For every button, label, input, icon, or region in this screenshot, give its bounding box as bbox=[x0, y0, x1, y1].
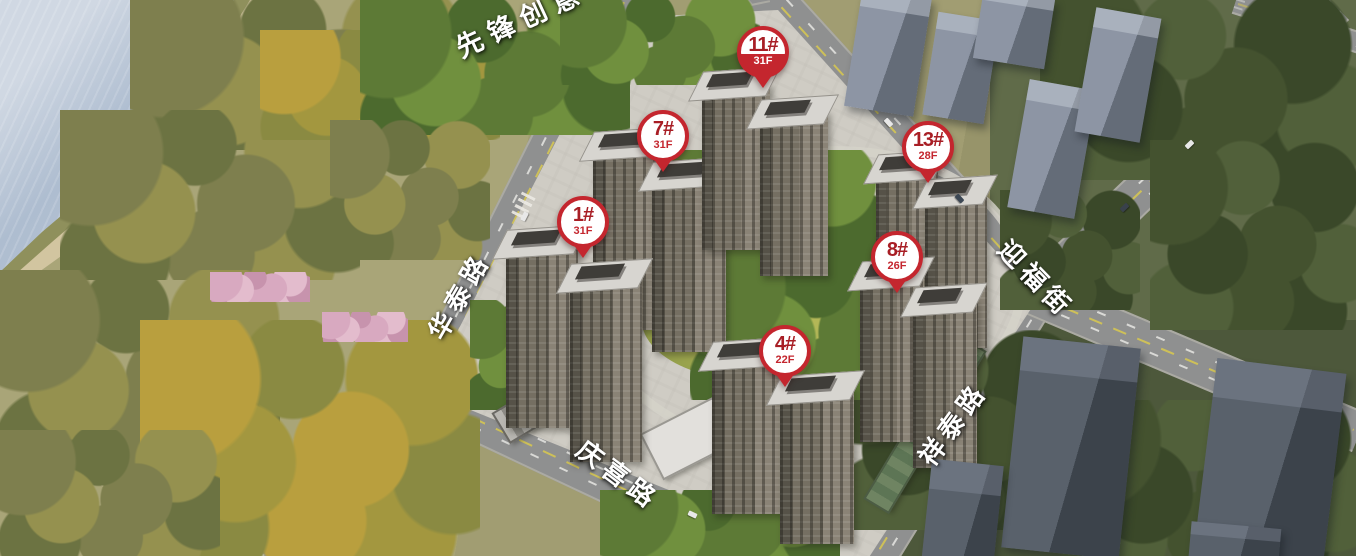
tower-1b bbox=[570, 274, 642, 462]
context-building bbox=[844, 0, 932, 117]
context-building bbox=[973, 0, 1055, 69]
blossom-tree-row bbox=[322, 312, 408, 342]
pin-circle: 13# 28F bbox=[902, 121, 954, 173]
pin-building-number: 1# bbox=[573, 205, 593, 225]
pin-circle: 11# 31F bbox=[737, 26, 789, 78]
building-pin-13[interactable]: 13# 28F bbox=[900, 121, 956, 183]
pin-building-number: 11# bbox=[748, 35, 777, 55]
pin-floor-count: 31F bbox=[654, 139, 673, 153]
context-building bbox=[1001, 336, 1141, 556]
pin-building-number: 4# bbox=[775, 334, 795, 354]
pin-circle: 8# 26F bbox=[871, 231, 923, 283]
site-aerial-map: 先锋创意 华泰路 迎福街 祥泰路 庆喜路 1# 31F 4# 22F 7# 31… bbox=[0, 0, 1356, 556]
pin-floor-count: 22F bbox=[776, 354, 795, 368]
pin-floor-count: 28F bbox=[919, 150, 938, 164]
tree-cluster bbox=[1150, 140, 1356, 330]
blossom-tree-row bbox=[210, 272, 310, 302]
pin-building-number: 13# bbox=[913, 130, 943, 150]
pin-floor-count: 26F bbox=[888, 260, 907, 274]
tower-4b bbox=[780, 386, 854, 544]
pin-circle: 7# 31F bbox=[637, 110, 689, 162]
tree-cluster bbox=[0, 430, 220, 556]
tree-cluster bbox=[330, 120, 490, 260]
pin-building-number: 7# bbox=[653, 119, 673, 139]
pin-circle: 4# 22F bbox=[759, 325, 811, 377]
pin-circle: 1# 31F bbox=[557, 196, 609, 248]
building-pin-8[interactable]: 8# 26F bbox=[869, 231, 925, 293]
building-pin-7[interactable]: 7# 31F bbox=[635, 110, 691, 172]
tower-11b bbox=[760, 110, 828, 276]
building-pin-11[interactable]: 11# 31F bbox=[735, 26, 791, 88]
pin-building-number: 8# bbox=[887, 240, 907, 260]
tower-1a bbox=[506, 240, 578, 428]
pin-floor-count: 31F bbox=[574, 225, 593, 239]
pin-floor-count: 31F bbox=[754, 55, 773, 69]
building-pin-4[interactable]: 4# 22F bbox=[757, 325, 813, 387]
building-pin-1[interactable]: 1# 31F bbox=[555, 196, 611, 258]
